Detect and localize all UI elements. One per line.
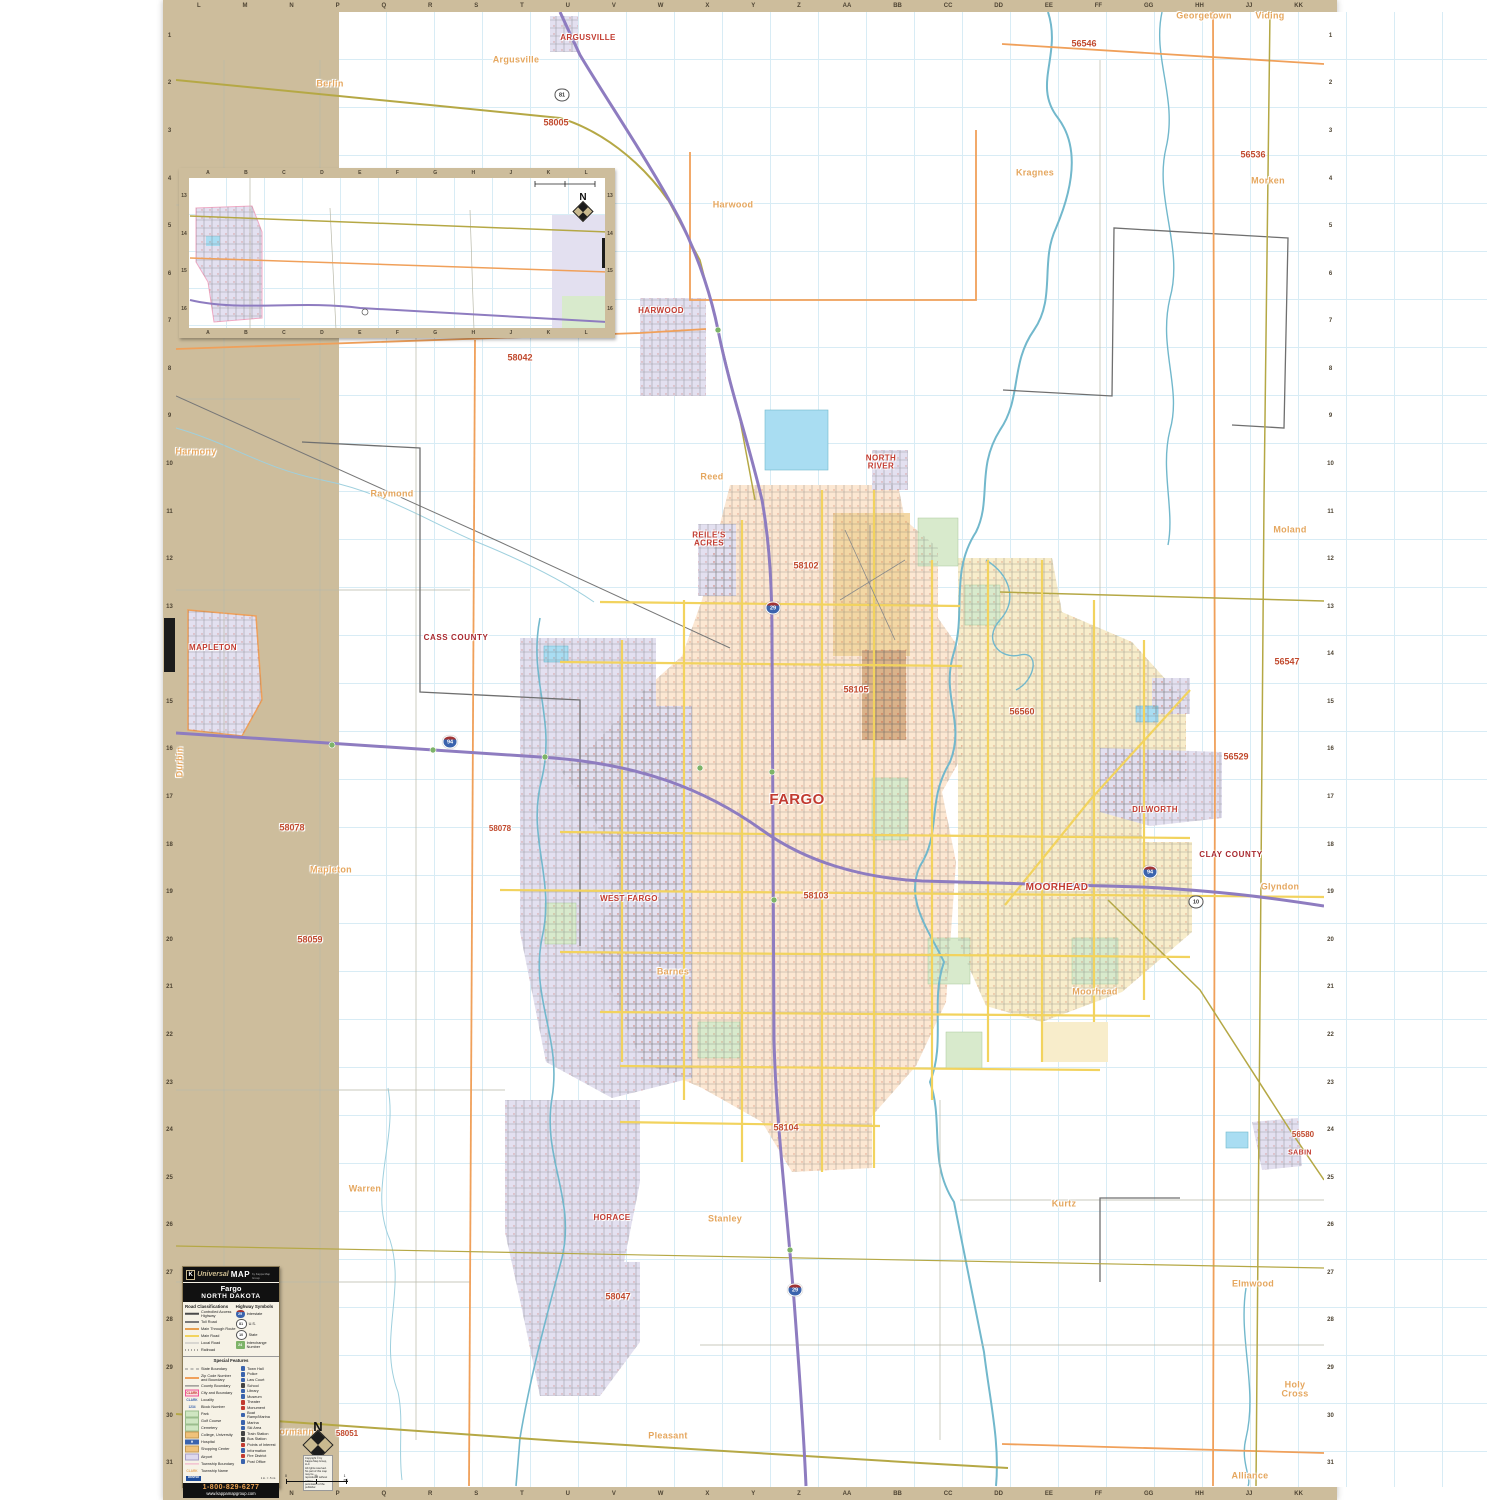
state-shield-icon: 10 bbox=[236, 1330, 247, 1340]
inset-letter-e: E bbox=[358, 171, 361, 176]
publisher-logo: K Universal MAP by Kappa Map Group bbox=[183, 1267, 279, 1282]
symbol-label: Police bbox=[247, 1372, 257, 1376]
locality-swatch: CLARK bbox=[185, 1397, 199, 1403]
inset-letter-j: J bbox=[509, 171, 512, 176]
scale-label-1-mi: 1 mi. bbox=[344, 1474, 349, 1482]
feature-label: Park bbox=[201, 1412, 209, 1416]
hosp-swatch: H bbox=[185, 1439, 199, 1445]
legend-road-main-through-route: Main Through Route bbox=[185, 1326, 236, 1332]
legend-feature-locality: CLARKLocality bbox=[185, 1397, 236, 1403]
road-label: Toll Road bbox=[201, 1320, 217, 1324]
college-swatch bbox=[185, 1432, 199, 1438]
inset-number-13: 13 bbox=[181, 194, 187, 199]
legend-road-toll-road: Toll Road bbox=[185, 1319, 236, 1325]
inset-numbers-right: 13141516 bbox=[605, 178, 615, 328]
train-station-icon bbox=[241, 1431, 246, 1436]
feature-label: College, University bbox=[201, 1433, 233, 1437]
twp-b-swatch bbox=[185, 1461, 199, 1467]
hwy-label: Interstate bbox=[247, 1312, 263, 1316]
park-swatch bbox=[185, 1411, 199, 1417]
scale-bar: 0½1 mi. bbox=[286, 1477, 348, 1485]
local-swatch bbox=[185, 1340, 199, 1346]
rail-swatch bbox=[185, 1347, 199, 1353]
special-features-right: Town HallPoliceLaw CourtSchoolLibraryMus… bbox=[236, 1365, 277, 1474]
legend-symbol-post-office: Post Office bbox=[236, 1459, 277, 1464]
symbol-label: Town Hall bbox=[247, 1367, 263, 1371]
legend-panel: K Universal MAP by Kappa Map Group Fargo… bbox=[182, 1266, 280, 1488]
legend-feature-golf-course: Golf Course bbox=[185, 1418, 236, 1424]
road-label: Main Through Route bbox=[201, 1327, 236, 1331]
legend-symbol-points-of-interest: Points of Interest bbox=[236, 1443, 277, 1448]
legend-feature-airport: Airport bbox=[185, 1454, 236, 1460]
post-office-icon bbox=[241, 1459, 246, 1464]
airport-swatch bbox=[185, 1454, 199, 1460]
legend-footer: 1-800-829-6277 www.kappamapgroup.com bbox=[183, 1483, 279, 1499]
library-icon bbox=[241, 1389, 246, 1394]
through-swatch bbox=[185, 1326, 199, 1332]
legend-symbol-bus-station: Bus Station bbox=[236, 1437, 277, 1442]
symbol-label: Boat Ramp/Marina bbox=[247, 1411, 277, 1419]
inset-letter-a: A bbox=[206, 331, 210, 336]
legend-hwy-state: 10State bbox=[236, 1330, 277, 1340]
legend-symbol-monument: Monument bbox=[236, 1406, 277, 1411]
legend-symbol-fire-district: Fire District bbox=[236, 1454, 277, 1459]
inset-letter-f: F bbox=[396, 171, 399, 176]
road-label: Controlled Access Highway bbox=[201, 1310, 236, 1318]
symbol-label: Fire District bbox=[247, 1454, 266, 1458]
scale-label-: ½ bbox=[315, 1474, 318, 1478]
inset-letter-h: H bbox=[471, 331, 475, 336]
legend-feature-state-boundary: State Boundary bbox=[185, 1366, 236, 1372]
city-b-swatch: CLARK bbox=[185, 1390, 199, 1396]
block-sample: 1234 bbox=[188, 1405, 195, 1409]
city-b-sample: CLARK bbox=[186, 1391, 197, 1395]
map-title: Fargo bbox=[183, 1285, 279, 1293]
legend-hwy-interchange-number: 24Interchange Number bbox=[236, 1341, 277, 1349]
road-label: Local Road bbox=[201, 1341, 220, 1345]
legend-road-railroad: Railroad bbox=[185, 1347, 236, 1353]
legend-symbol-police: Police bbox=[236, 1372, 277, 1377]
inset-letter-k: K bbox=[547, 331, 551, 336]
hwy-label: State bbox=[249, 1333, 258, 1337]
legend-road-main-road: Main Road bbox=[185, 1333, 236, 1339]
scale-tick bbox=[286, 1479, 287, 1484]
special-features-header: Special Features bbox=[183, 1356, 279, 1363]
brand-map: MAP bbox=[231, 1270, 250, 1279]
monument-icon bbox=[241, 1406, 246, 1411]
symbol-label: Monument bbox=[247, 1406, 265, 1410]
twp-n-sample: CLARK bbox=[186, 1469, 197, 1473]
legend-feature-county-boundary: County Boundary bbox=[185, 1383, 236, 1389]
feature-label: County Boundary bbox=[201, 1384, 230, 1388]
inset-canvas bbox=[189, 178, 605, 328]
golf-swatch bbox=[185, 1418, 199, 1424]
legend-symbol-law-court: Law Court bbox=[236, 1378, 277, 1383]
legend-symbol-museum: Museum bbox=[236, 1394, 277, 1399]
road-classifications-header: Road Classifications bbox=[185, 1304, 236, 1309]
interchange-shield-icon: 24 bbox=[236, 1341, 245, 1349]
inset-letter-c: C bbox=[282, 331, 286, 336]
inset-letter-h: H bbox=[471, 171, 475, 176]
inset-letter-g: G bbox=[433, 331, 437, 336]
symbol-label: Bus Station bbox=[247, 1437, 266, 1441]
symbol-label: Library bbox=[247, 1389, 259, 1393]
scale-note: 1 in. = .5 mi. bbox=[261, 1476, 276, 1480]
inset-number-16: 16 bbox=[607, 307, 613, 312]
symbol-label: Theater bbox=[247, 1400, 260, 1404]
inset-letter-l: L bbox=[585, 171, 588, 176]
scale-tick bbox=[316, 1479, 317, 1484]
inset-letter-l: L bbox=[585, 331, 588, 336]
inset-number-15: 15 bbox=[181, 269, 187, 274]
symbol-label: Marina bbox=[247, 1421, 259, 1425]
police-icon bbox=[241, 1372, 246, 1377]
county-b-swatch bbox=[185, 1383, 199, 1389]
legend-title-block: Fargo NORTH DAKOTA bbox=[183, 1283, 279, 1302]
hwy-label: U.S. bbox=[249, 1322, 256, 1326]
feature-label: Locality bbox=[201, 1398, 214, 1402]
bus-station-icon bbox=[241, 1437, 246, 1442]
copyright-block: Copyright © byKappa Map Group, LLCAll ri… bbox=[303, 1455, 333, 1491]
symbol-label: Information bbox=[247, 1449, 266, 1453]
legend-feature-block-number: 1234Block Number bbox=[185, 1404, 236, 1410]
legend-symbol-marina: Marina bbox=[236, 1420, 277, 1425]
kappa-k-icon: K bbox=[186, 1270, 195, 1280]
feature-label: Airport bbox=[201, 1455, 212, 1459]
state-b-swatch bbox=[185, 1366, 199, 1372]
legend-feature-college-university: College, University bbox=[185, 1432, 236, 1438]
symbol-label: Museum bbox=[247, 1395, 262, 1399]
inset-letter-d: D bbox=[320, 331, 324, 336]
legend-feature-hospital: HHospital bbox=[185, 1439, 236, 1445]
feature-label: Golf Course bbox=[201, 1419, 221, 1423]
fargo-wall-map-page: LMNPQRSTUVWXYZAABBCCDDEEFFGGHHJJKK LMNPQ… bbox=[0, 0, 1500, 1500]
legend-feature-township-name: CLARKTownship Name bbox=[185, 1468, 236, 1474]
symbol-label: Points of Interest bbox=[247, 1443, 276, 1447]
legend-symbol-school: School bbox=[236, 1383, 277, 1388]
points-of-interest-icon bbox=[241, 1443, 246, 1448]
theater-icon bbox=[241, 1400, 246, 1405]
ski-area-icon bbox=[241, 1426, 246, 1431]
school-icon bbox=[241, 1383, 246, 1388]
inset-letter-a: A bbox=[206, 171, 210, 176]
inset-letter-j: J bbox=[509, 331, 512, 336]
match-strip-left bbox=[164, 618, 175, 672]
boat-ramp-marina-icon bbox=[241, 1413, 246, 1418]
feature-label: Shopping Center bbox=[201, 1447, 230, 1451]
inset-number-13: 13 bbox=[607, 194, 613, 199]
interstate-shield-icon: 29 bbox=[236, 1310, 245, 1318]
feature-label: Township Boundary bbox=[201, 1462, 234, 1466]
legend-feature-shopping-center: Shopping Center bbox=[185, 1446, 236, 1452]
legend-road-local-road: Local Road bbox=[185, 1340, 236, 1346]
inset-letter-b: B bbox=[244, 331, 248, 336]
brand-universal: Universal bbox=[197, 1271, 229, 1278]
website-url: www.kappamapgroup.com bbox=[183, 1491, 279, 1496]
feature-label: Township Name bbox=[201, 1469, 228, 1473]
feature-label: Hospital bbox=[201, 1440, 215, 1444]
scale-label-0: 0 bbox=[285, 1474, 287, 1478]
feature-label: City and Boundary bbox=[201, 1391, 232, 1395]
inset-letter-e: E bbox=[358, 331, 361, 336]
legend-symbol-town-hall: Town Hall bbox=[236, 1366, 277, 1371]
block-swatch: 1234 bbox=[185, 1404, 199, 1410]
inset-letter-d: D bbox=[320, 171, 324, 176]
road-label: Main Road bbox=[201, 1334, 219, 1338]
brand-tagline: by Kappa Map Group bbox=[252, 1272, 276, 1280]
legend-feature-zip-code-number-and-boundary: Zip Code Number and Boundary bbox=[185, 1374, 236, 1382]
road-classifications-list: Controlled Access HighwayToll RoadMain T… bbox=[185, 1310, 236, 1353]
feature-label: Cemetery bbox=[201, 1426, 217, 1430]
cem-swatch bbox=[185, 1425, 199, 1431]
hwy-label: Interchange Number bbox=[247, 1341, 277, 1349]
town-hall-icon bbox=[241, 1366, 246, 1371]
legend-feature-park: Park bbox=[185, 1411, 236, 1417]
wanted-badge: WANTED bbox=[186, 1476, 201, 1481]
inset-number-14: 14 bbox=[181, 232, 187, 237]
zip-b-swatch bbox=[185, 1375, 199, 1381]
inset-numbers-left: 13141516 bbox=[179, 178, 189, 328]
marina-icon bbox=[241, 1420, 246, 1425]
legend-hwy-interstate: 29Interstate bbox=[236, 1310, 277, 1318]
law-court-icon bbox=[241, 1378, 246, 1383]
map-subtitle: NORTH DAKOTA bbox=[183, 1293, 279, 1300]
inset-number-15: 15 bbox=[607, 269, 613, 274]
fire-district-icon bbox=[241, 1454, 246, 1459]
phone-number: 1-800-829-6277 bbox=[183, 1484, 279, 1491]
inset-letter-f: F bbox=[396, 331, 399, 336]
legend-symbol-information: Information bbox=[236, 1448, 277, 1453]
legend-hwy-u-s: 81U.S. bbox=[236, 1319, 277, 1329]
casselton-inset-map: ABCDEFGHJKL ABCDEFGHJKL 13141516 1314151… bbox=[179, 168, 615, 338]
feature-label: Block Number bbox=[201, 1405, 225, 1409]
legend-feature-city-and-boundary: CLARKCity and Boundary bbox=[185, 1390, 236, 1396]
highway-symbols-list: 29Interstate81U.S.10State24Interchange N… bbox=[236, 1310, 277, 1349]
symbol-label: Post Office bbox=[247, 1460, 266, 1464]
inset-letter-c: C bbox=[282, 171, 286, 176]
road-label: Railroad bbox=[201, 1348, 215, 1352]
legend-symbol-theater: Theater bbox=[236, 1400, 277, 1405]
shop-swatch bbox=[185, 1446, 199, 1452]
symbol-label: School bbox=[247, 1384, 259, 1388]
inset-number-14: 14 bbox=[607, 232, 613, 237]
symbol-label: Train Station bbox=[247, 1432, 268, 1436]
inset-letter-g: G bbox=[433, 171, 437, 176]
twp-n-swatch: CLARK bbox=[185, 1468, 199, 1474]
us-shield-icon: 81 bbox=[236, 1319, 247, 1329]
toll-swatch bbox=[185, 1319, 199, 1325]
feature-label: Zip Code Number and Boundary bbox=[201, 1374, 236, 1382]
hosp-sample: H bbox=[191, 1440, 193, 1444]
legend-symbol-ski-area: Ski Area bbox=[236, 1426, 277, 1431]
inset-letter-b: B bbox=[244, 171, 248, 176]
symbol-label: Law Court bbox=[247, 1378, 264, 1382]
legend-symbol-boat-ramp-marina: Boat Ramp/Marina bbox=[236, 1411, 277, 1419]
main-swatch bbox=[185, 1333, 199, 1339]
museum-icon bbox=[241, 1394, 246, 1399]
controlled-swatch bbox=[185, 1311, 199, 1317]
legend-symbol-train-station: Train Station bbox=[236, 1431, 277, 1436]
legend-road-controlled-access-highway: Controlled Access Highway bbox=[185, 1310, 236, 1318]
legend-feature-township-boundary: Township Boundary bbox=[185, 1461, 236, 1467]
symbol-label: Ski Area bbox=[247, 1426, 261, 1430]
inset-number-16: 16 bbox=[181, 307, 187, 312]
inset-letters-top: ABCDEFGHJKL bbox=[189, 168, 605, 178]
feature-label: State Boundary bbox=[201, 1367, 227, 1371]
legend-symbol-library: Library bbox=[236, 1389, 277, 1394]
special-features-left: State BoundaryZip Code Number and Bounda… bbox=[185, 1365, 236, 1474]
highway-symbols-header: Highway Symbols bbox=[236, 1304, 277, 1309]
information-icon bbox=[241, 1448, 246, 1453]
locality-sample: CLARK bbox=[186, 1398, 197, 1402]
inset-letters-bottom: ABCDEFGHJKL bbox=[189, 328, 605, 338]
inset-letter-k: K bbox=[547, 171, 551, 176]
legend-feature-cemetery: Cemetery bbox=[185, 1425, 236, 1431]
